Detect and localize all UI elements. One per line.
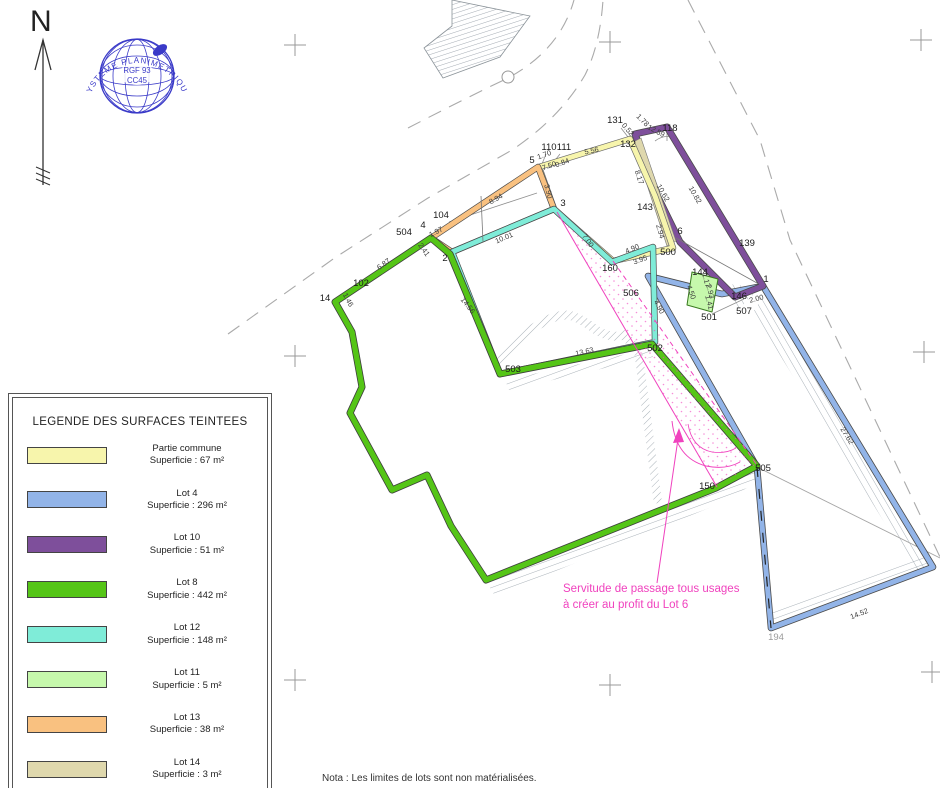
boundary-marker-circle [502,71,514,83]
point-label: 507 [736,306,752,317]
legend-item-name: Lot 4 [107,488,267,500]
servitude-label-line1: Servitude de passage tous usages [563,583,740,595]
legend-item-name: Lot 10 [107,532,267,544]
servitude-label-line2: à créer au profit du Lot 6 [563,599,688,611]
legend-item-name: Lot 14 [107,757,267,769]
legend-item-area: Superficie : 5 m² [107,680,267,692]
point-label: 4 [420,220,425,231]
site-plan-page: N SYSTEME PLANIMETRIQUE RGF 93 CC45 5044… [0,0,940,788]
point-label: 503 [505,364,521,375]
point-label: 194 [768,632,784,643]
legend-item-area: Superficie : 442 m² [107,590,267,602]
legend-item-text: Partie communeSuperficie : 67 m² [107,443,267,468]
point-label: 500 [660,247,676,258]
point-label: 160 [602,263,618,274]
legend-item-area: Superficie : 3 m² [107,769,267,781]
legend-swatch [27,761,107,778]
legend-swatch [27,626,107,643]
legend-swatch [27,536,107,553]
legend-item-name: Partie commune [107,443,267,455]
legend-item-area: Superficie : 67 m² [107,455,267,467]
point-label: 3 [560,198,565,209]
point-label: 111 [557,142,571,153]
svg-text:RGF 93: RGF 93 [123,66,150,75]
legend-swatch [27,491,107,508]
legend-swatch [27,581,107,598]
legend-title: LEGENDE DES SURFACES TEINTEES [13,416,267,428]
north-arrow: N [30,5,52,185]
hatch-areas [424,0,940,628]
legend-item-area: Superficie : 38 m² [107,724,267,736]
point-label: 131 [607,115,623,126]
point-label: 6 [677,226,682,237]
legend-item-text: Lot 11Superficie : 5 m² [107,667,267,692]
legend-inner-frame: LEGENDE DES SURFACES TEINTEES Partie com… [12,397,268,788]
legend-item-text: Lot 4Superficie : 296 m² [107,488,267,513]
dimension-label: 1.70 [536,148,553,161]
legend-item: Partie communeSuperficie : 67 m² [13,440,267,470]
legend-item-text: Lot 14Superficie : 3 m² [107,757,267,782]
legend-swatch [27,716,107,733]
legend-item-name: Lot 12 [107,622,267,634]
legend-item: Lot 14Superficie : 3 m² [13,754,267,784]
lot13-band [431,167,554,252]
point-label: 504 [396,227,412,238]
point-label: 505 [755,463,771,474]
point-label: 146 [731,291,747,302]
legend-item-name: Lot 13 [107,712,267,724]
point-label: 5 [529,155,534,166]
legend-item: Lot 13Superficie : 38 m² [13,709,267,739]
point-label: 102 [353,278,369,289]
building-hatch [424,0,530,78]
svg-text:N: N [30,5,52,38]
legend-item-area: Superficie : 296 m² [107,500,267,512]
legend-item: Lot 10Superficie : 51 m² [13,530,267,560]
legend-box: LEGENDE DES SURFACES TEINTEES Partie com… [8,393,272,788]
point-label: 139 [739,238,755,249]
point-label: 2 [442,253,447,264]
dimension-label: 14.52 [849,606,869,621]
dimension-label: 3.90 [542,183,554,199]
legend-item-text: Lot 12Superficie : 148 m² [107,622,267,647]
point-label: 14 [320,293,331,304]
legend-item-text: Lot 8Superficie : 442 m² [107,577,267,602]
lot-bands [335,127,933,628]
nota-text: Nota : Les limites de lots sont non maté… [322,773,537,784]
legend-item-text: Lot 13Superficie : 38 m² [107,712,267,737]
point-label: 506 [623,288,639,299]
dimension-label: 5.56 [584,145,600,157]
point-label: 104 [433,210,449,221]
point-label: 150 [699,481,715,492]
legend-item: Lot 11Superficie : 5 m² [13,665,267,695]
legend-item-text: Lot 10Superficie : 51 m² [107,532,267,557]
legend-item-name: Lot 8 [107,577,267,589]
point-label: 143 [637,202,653,213]
legend-item-area: Superficie : 148 m² [107,635,267,647]
point-label: 501 [701,312,717,323]
legend-item-name: Lot 11 [107,667,267,679]
legend-swatch [27,671,107,688]
lot13-band-outline [431,167,554,252]
legend-item: Lot 4Superficie : 296 m² [13,485,267,515]
legend-swatch [27,447,107,464]
point-label: 502 [647,343,663,354]
planimetric-stamp: SYSTEME PLANIMETRIQUE RGF 93 CC45 [0,0,189,113]
svg-text:CC45: CC45 [127,76,148,85]
legend-item-area: Superficie : 51 m² [107,545,267,557]
dimension-label: 0.84 [554,156,571,169]
point-label: 1 [763,274,768,285]
point-label: 132 [620,139,636,150]
dimension-label: 2.41 [416,241,432,258]
legend-item: Lot 8Superficie : 442 m² [13,575,267,605]
legend-item: Lot 12Superficie : 148 m² [13,620,267,650]
road-dashed-lines [228,0,940,557]
